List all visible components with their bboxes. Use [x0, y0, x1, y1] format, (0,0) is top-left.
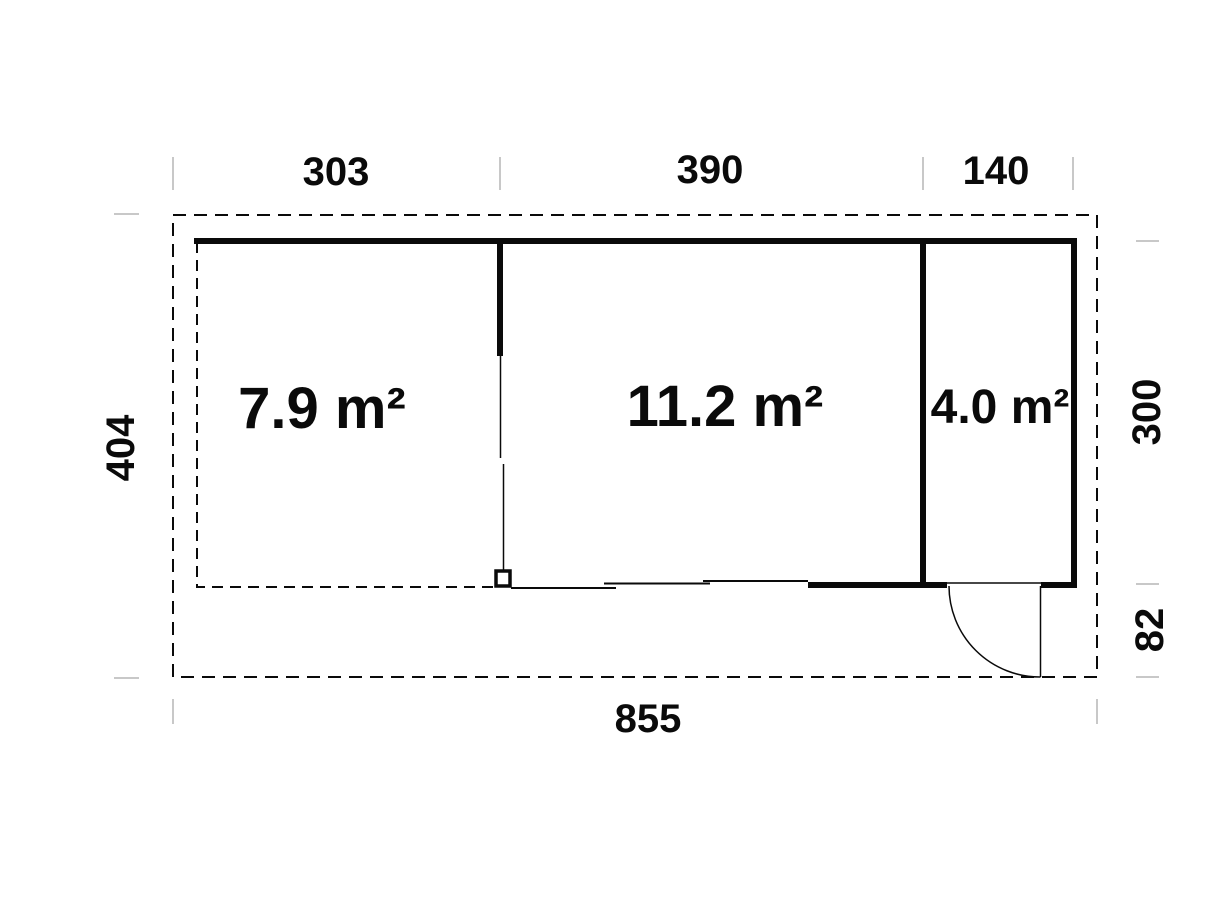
terrace-post	[496, 571, 510, 586]
room-area-label-middle: 11.2 m²	[627, 378, 824, 436]
door-swing-arc	[949, 586, 1041, 677]
dimension-label-right-2: 82	[1130, 608, 1170, 653]
sliding-door-panels	[511, 581, 808, 588]
dimension-label-left: 404	[101, 415, 141, 482]
room-area-label-left: 7.9 m²	[238, 380, 406, 438]
dimension-label-top-1: 303	[303, 152, 370, 192]
floor-plan-drawing	[0, 0, 1214, 911]
door	[947, 583, 1041, 677]
dimension-label-top-2: 390	[677, 150, 744, 190]
dimension-label-bottom: 855	[615, 699, 682, 739]
outer-boundary-dashed	[173, 215, 1097, 677]
floor-plan-canvas: 303 390 140 404 300 82 855 7.9 m² 11.2 m…	[0, 0, 1214, 911]
room-area-label-right: 4.0 m²	[931, 384, 1070, 432]
dimension-label-top-3: 140	[963, 151, 1030, 191]
dimension-label-right-1: 300	[1127, 379, 1167, 446]
